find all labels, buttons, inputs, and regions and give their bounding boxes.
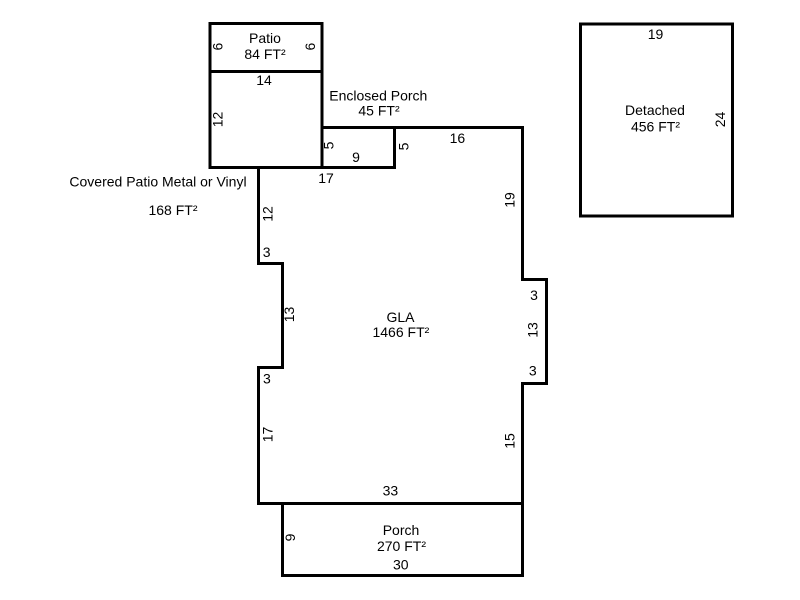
svg-text:84 FT²: 84 FT² (244, 46, 286, 62)
svg-text:15: 15 (501, 433, 517, 449)
svg-text:Porch: Porch (383, 522, 420, 538)
svg-text:3: 3 (530, 287, 538, 303)
svg-text:33: 33 (383, 482, 399, 498)
svg-text:1466 FT²: 1466 FT² (372, 324, 429, 340)
svg-text:17: 17 (318, 170, 334, 186)
svg-text:6: 6 (209, 42, 225, 50)
svg-text:30: 30 (393, 557, 409, 573)
svg-text:9: 9 (282, 533, 298, 541)
svg-text:270 FT²: 270 FT² (377, 538, 426, 554)
svg-text:3: 3 (263, 244, 271, 260)
svg-text:5: 5 (321, 141, 337, 149)
svg-text:168 FT²: 168 FT² (148, 202, 197, 218)
svg-text:456 FT²: 456 FT² (631, 118, 680, 134)
svg-text:17: 17 (260, 427, 276, 443)
svg-text:3: 3 (263, 371, 271, 387)
svg-text:3: 3 (529, 363, 537, 379)
svg-text:Detached: Detached (625, 102, 685, 118)
svg-text:5: 5 (396, 142, 412, 150)
svg-text:24: 24 (712, 112, 728, 128)
svg-text:13: 13 (281, 307, 297, 323)
svg-text:45 FT²: 45 FT² (358, 102, 400, 118)
svg-text:Enclosed Porch: Enclosed Porch (329, 87, 427, 103)
svg-text:6: 6 (302, 42, 318, 50)
svg-text:Patio: Patio (249, 30, 281, 46)
svg-text:13: 13 (525, 322, 541, 338)
svg-text:14: 14 (256, 72, 272, 88)
svg-text:19: 19 (648, 26, 664, 42)
svg-text:9: 9 (352, 149, 360, 165)
svg-text:12: 12 (260, 206, 276, 222)
svg-text:12: 12 (210, 112, 226, 128)
svg-text:16: 16 (450, 130, 466, 146)
svg-text:GLA: GLA (386, 309, 415, 325)
svg-text:19: 19 (501, 192, 517, 208)
svg-text:Covered Patio Metal or Vinyl: Covered Patio Metal or Vinyl (69, 173, 246, 189)
